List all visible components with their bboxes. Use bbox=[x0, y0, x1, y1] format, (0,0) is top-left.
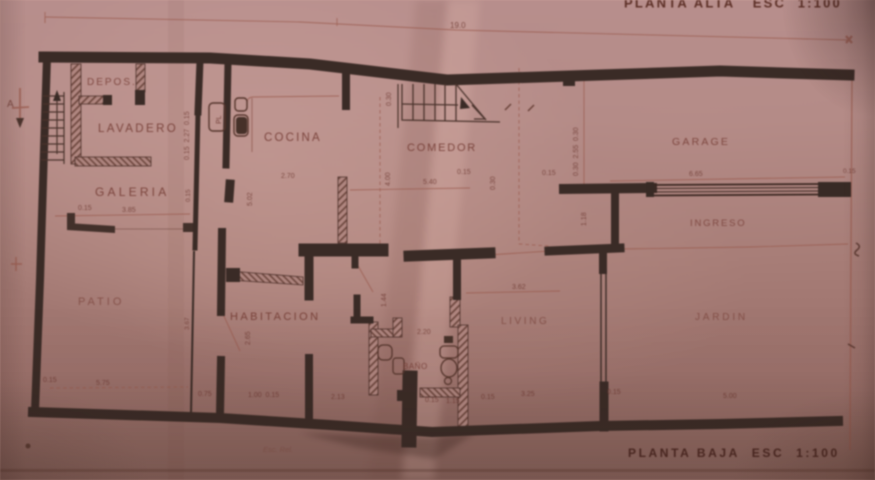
svg-text:INGRESO: INGRESO bbox=[690, 218, 746, 229]
svg-text:5.75: 5.75 bbox=[96, 380, 110, 387]
svg-text:COCINA: COCINA bbox=[264, 132, 322, 144]
svg-text:1.00 0.15: 1.00 0.15 bbox=[248, 392, 279, 399]
svg-text:0.15: 0.15 bbox=[425, 397, 439, 404]
svg-text:4.00: 4.00 bbox=[385, 172, 392, 186]
svg-text:Esc. Rel.: Esc. Rel. bbox=[263, 445, 293, 454]
svg-text:0.15: 0.15 bbox=[607, 389, 621, 396]
svg-text:6.65: 6.65 bbox=[689, 171, 703, 178]
svg-text:2.13: 2.13 bbox=[331, 394, 345, 401]
svg-text:0.15: 0.15 bbox=[185, 189, 192, 202]
svg-text:1.18: 1.18 bbox=[581, 212, 588, 226]
svg-text:LAVADERO: LAVADERO bbox=[98, 123, 178, 135]
svg-text:0.15: 0.15 bbox=[457, 169, 471, 176]
svg-text:HABITACION: HABITACION bbox=[230, 311, 320, 323]
svg-text:5.40: 5.40 bbox=[423, 179, 437, 186]
svg-text:PLANTA BAJA ESC 1:100: PLANTA BAJA ESC 1:100 bbox=[628, 446, 840, 460]
svg-text:2.70: 2.70 bbox=[281, 173, 295, 180]
svg-text:PATIO: PATIO bbox=[78, 296, 124, 308]
svg-text:1.15: 1.15 bbox=[446, 398, 460, 405]
svg-text:0.15: 0.15 bbox=[481, 394, 495, 401]
svg-text:LIVING: LIVING bbox=[501, 316, 549, 327]
svg-text:DEPOS.: DEPOS. bbox=[87, 77, 137, 88]
svg-text:GALERIA: GALERIA bbox=[95, 185, 169, 199]
svg-text:0.75: 0.75 bbox=[198, 391, 212, 398]
svg-text:JARDIN: JARDIN bbox=[695, 312, 748, 323]
svg-text:0.30: 0.30 bbox=[386, 92, 393, 106]
svg-text:5.00: 5.00 bbox=[723, 393, 737, 400]
svg-text:1.44: 1.44 bbox=[381, 293, 388, 307]
svg-text:3.62: 3.62 bbox=[512, 284, 526, 291]
svg-text:0.15: 0.15 bbox=[843, 168, 856, 175]
svg-text:3.25: 3.25 bbox=[521, 391, 535, 398]
svg-text:3.85: 3.85 bbox=[122, 207, 136, 214]
svg-text:0.15: 0.15 bbox=[43, 377, 57, 384]
svg-text:19.0: 19.0 bbox=[450, 21, 466, 30]
svg-text:A: A bbox=[7, 99, 14, 110]
svg-text:0.15 2.27 0.15: 0.15 2.27 0.15 bbox=[184, 111, 191, 160]
svg-text:PL: PL bbox=[216, 115, 223, 124]
svg-text:5.02: 5.02 bbox=[247, 192, 254, 206]
svg-text:2.20: 2.20 bbox=[417, 329, 431, 336]
svg-text:2.65: 2.65 bbox=[245, 331, 252, 345]
svg-text:PLANTA ALTA ESC 1:100: PLANTA ALTA ESC 1:100 bbox=[624, 0, 842, 11]
svg-text:0.15: 0.15 bbox=[542, 170, 556, 177]
svg-text:0.30: 0.30 bbox=[490, 176, 497, 190]
svg-text:0.30 2.55 0.30: 0.30 2.55 0.30 bbox=[573, 127, 580, 176]
svg-text:0.15: 0.15 bbox=[78, 205, 92, 212]
svg-text:3.67: 3.67 bbox=[184, 317, 191, 330]
svg-text:GARAGE: GARAGE bbox=[672, 136, 730, 148]
svg-text:COMEDOR: COMEDOR bbox=[407, 142, 477, 154]
svg-text:BAÑO: BAÑO bbox=[403, 362, 428, 371]
